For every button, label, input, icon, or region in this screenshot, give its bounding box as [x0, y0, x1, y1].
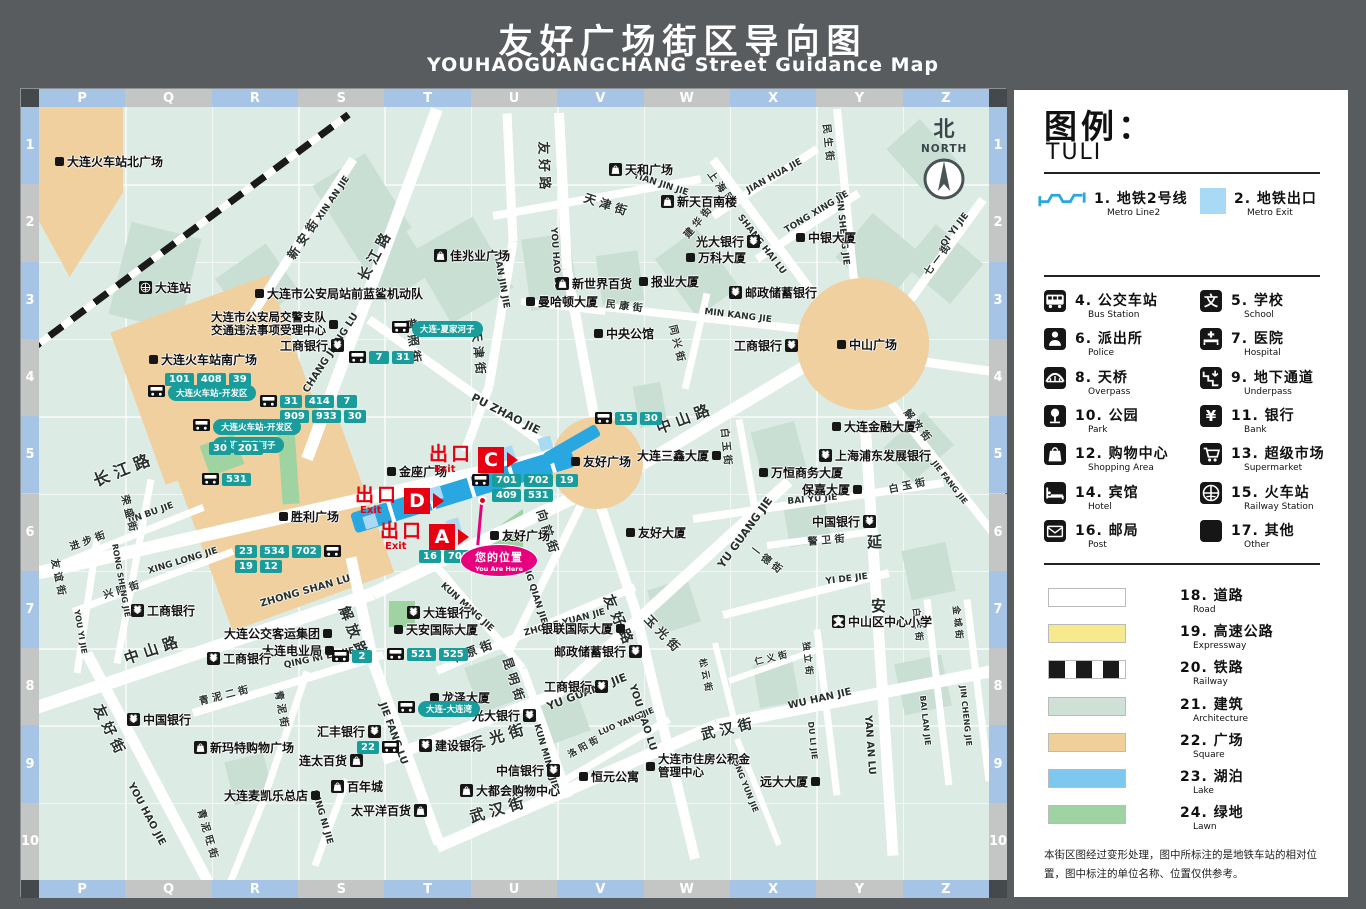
shopping-icon	[661, 195, 674, 208]
exit-arrow-icon	[433, 493, 444, 509]
bus-stop-icon	[472, 474, 489, 486]
shopping-icon	[556, 277, 569, 290]
building-marker-icon	[149, 355, 158, 364]
bus-stop-icon	[382, 741, 399, 753]
bus-route-row: 23534702	[235, 545, 321, 558]
poi-text: 友好广场	[502, 527, 550, 544]
poi-label: 天安国际大厦	[394, 621, 478, 638]
poi-text: 万科大厦	[698, 249, 746, 266]
grid-col-label: P	[39, 880, 125, 898]
bus-route-badge: 531	[524, 489, 553, 502]
street-label: 松 云 街	[696, 657, 716, 692]
building-marker-icon	[712, 451, 721, 460]
ruler-corner	[989, 89, 1007, 107]
bus-route-badge: 534	[260, 545, 289, 558]
poi-text: 远大大厦	[760, 773, 808, 790]
poi-label: ¥建设银行	[419, 737, 483, 754]
legend-item-text: 5. 学校School	[1231, 290, 1284, 320]
bus-stop-info: 531	[222, 473, 251, 486]
shopping-icon	[194, 741, 207, 754]
exit-arrow-icon	[507, 452, 518, 468]
bus-route-badge: 409	[492, 489, 521, 502]
poi-text: 汇丰银行	[317, 723, 365, 740]
poi-label: 万恒商务大厦	[759, 464, 843, 481]
page-subtitle: YOUHAOGUANGCHANG Street Guidance Map	[0, 54, 1366, 76]
bus-stop: 大连-夏家河子	[392, 321, 483, 337]
building-marker-icon	[594, 329, 603, 338]
legend-item: 15. 火车站Railway Station	[1200, 482, 1314, 512]
poi-text: 恒元公寓	[591, 768, 639, 785]
poi-label: 大连市公安局站前蓝鲨机动队	[255, 285, 423, 302]
bus-stop: 大连火车站-开发区	[148, 385, 256, 401]
street-label: 独 立 街	[800, 641, 816, 675]
poi-label: ¥上海浦东发展银行	[819, 447, 931, 464]
legend-item: 13. 超级市场Supermarket	[1200, 443, 1325, 473]
exit-arrow-icon	[458, 529, 469, 545]
grid-row-label: 7	[989, 571, 1007, 648]
poi-text: 佳兆业广场	[450, 247, 510, 264]
bus-route-badge: 702	[524, 474, 553, 487]
bus-route-badge: 702	[292, 545, 321, 558]
bus-stop-info: 大连-夏家河子	[412, 321, 483, 337]
legend-item: 1. 地铁2号线Metro Line2	[1038, 188, 1188, 218]
poi-text: 工商银行	[544, 678, 592, 695]
poi-label: 大连市住房公积金管理中心	[646, 753, 750, 779]
bus-stop: 22	[357, 741, 399, 754]
grid-col-label: Y	[816, 880, 902, 898]
you-are-here-zh: 您的位置	[475, 549, 523, 565]
grid-row-label: 5	[989, 416, 1007, 493]
legend-item-text: 10. 公园Park	[1075, 405, 1139, 435]
poi-text: 大连麦凯乐总店	[224, 787, 308, 804]
road	[712, 642, 738, 723]
poi-label: 邮政储蓄银行¥	[554, 643, 642, 660]
bus-route-badge: 12	[260, 560, 282, 573]
bus-stop: 731	[349, 351, 414, 364]
building-marker-icon	[837, 340, 846, 349]
building-shape	[901, 542, 955, 600]
grid-row-label: 4	[989, 339, 1007, 416]
poi-label: 大都会购物中心	[460, 782, 560, 799]
poi-label: ¥工商银行	[207, 650, 271, 667]
bus-route-name-badge: 大连火车站-开发区	[168, 385, 256, 401]
poi-label: 恒元公寓	[579, 768, 639, 785]
poi-text: 友好大厦	[638, 524, 686, 541]
map-panel: 长 江 路CHANG JIANG LU长 江 路中 山 路ZHONG SHAN …	[20, 88, 1006, 897]
poi-label: ¥大连银行	[407, 604, 471, 621]
poi-text: 中国银行	[812, 513, 860, 530]
building-marker-icon	[571, 457, 580, 466]
poi-label: 佳兆业广场	[434, 247, 510, 264]
poi-label: 中国银行¥	[812, 513, 876, 530]
grid-row-label: 5	[21, 416, 39, 493]
bus-route-badge: 30	[209, 442, 231, 455]
poi-label: 万科大厦	[686, 249, 746, 266]
bus-stop-info: 大连-大连湾	[418, 701, 480, 717]
poi-text: 中山广场	[849, 336, 897, 353]
overpass-icon	[1044, 367, 1066, 389]
bus-route-badge: 521	[407, 648, 436, 661]
exit-text: 出口Exit	[380, 522, 424, 552]
poi-label: ¥邮政储蓄银行	[729, 284, 817, 301]
bus-stop-icon	[387, 648, 404, 660]
grid-col-label: R	[212, 880, 298, 898]
building-marker-icon	[490, 531, 499, 540]
poi-label: 中央公馆	[594, 325, 654, 342]
bus-stop-info: 70170219409531	[492, 474, 578, 502]
grid-row-label: 9	[21, 725, 39, 802]
building-marker-icon	[646, 762, 655, 771]
bus-route-row: 314147	[280, 395, 366, 408]
legend-item-text: 7. 医院Hospital	[1231, 328, 1284, 358]
building-marker-icon	[55, 157, 64, 166]
building-marker-icon	[394, 625, 403, 634]
bus-route-badge: 19	[235, 560, 257, 573]
metro-exit-letter: D	[404, 488, 430, 514]
ruler-corner	[989, 880, 1007, 898]
poi-label: 大连火车站北广场	[55, 153, 163, 170]
bus-route-badge: 531	[222, 473, 251, 486]
grid-row-label: 8	[21, 648, 39, 725]
legend-swatch	[1048, 588, 1126, 607]
bus-stop: 大连-大连湾	[398, 701, 480, 717]
shopping-icon	[1044, 443, 1066, 465]
grid-col-label: S	[298, 880, 384, 898]
you-are-here-dot	[478, 496, 487, 505]
exit-zh: 出口	[380, 522, 424, 541]
legend-item-text: 8. 天桥Overpass	[1075, 367, 1130, 397]
building-marker-icon	[686, 253, 695, 262]
poi-text: 保嘉大厦	[802, 481, 850, 498]
poi-text: 天和广场	[625, 161, 673, 178]
grid-col-label: T	[384, 89, 470, 107]
legend-item-text: 6. 派出所Police	[1075, 328, 1143, 358]
bank-icon: ¥	[729, 286, 742, 299]
school-icon: 文	[1200, 290, 1222, 312]
poi-label: 光大银行¥	[696, 233, 760, 250]
legend-swatch	[1048, 733, 1126, 752]
poi-text: 中国银行	[143, 711, 191, 728]
exit-zh: 出口	[429, 445, 473, 464]
poi-text: 天安国际大厦	[406, 621, 478, 638]
poi-text: 大连三鑫大厦	[637, 447, 709, 464]
grid-row-label: 4	[21, 339, 39, 416]
legend-item-text: 15. 火车站Railway Station	[1231, 482, 1314, 512]
building-marker-icon	[329, 320, 338, 329]
bus-stop-icon	[349, 351, 366, 363]
legend-item-text: 1. 地铁2号线Metro Line2	[1094, 188, 1188, 218]
bus-route-badge: 701	[492, 474, 521, 487]
poi-text: 工商银行	[223, 650, 271, 667]
legend-item: 9. 地下通道Underpass	[1200, 367, 1314, 397]
bus-route-row: 521525	[407, 648, 468, 661]
poi-text: 大连市公安局交警支队交通违法事项受理中心	[211, 311, 326, 337]
grid-row-label: 6	[989, 494, 1007, 571]
metro-exit-letter: A	[429, 524, 455, 550]
legend-item-text: 2. 地铁出口Metro Exit	[1234, 188, 1317, 218]
metro-exit-label: 出口ExitD	[355, 486, 444, 516]
shopping-icon	[350, 754, 363, 767]
bank-icon: ¥	[747, 235, 760, 248]
exit-en: Exit	[380, 541, 424, 552]
poi-label: 远大大厦	[760, 773, 820, 790]
poi-text: 胜利广场	[291, 508, 339, 525]
bus-route-row: 731	[369, 351, 414, 364]
grid-col-label: V	[557, 880, 643, 898]
poi-text: 新世界百货	[572, 275, 632, 292]
legend-item: 16. 邮局Post	[1044, 520, 1139, 550]
bus-route-name-badge: 大连-大连湾	[418, 701, 480, 717]
bus-stop: 2	[332, 650, 372, 663]
divider	[1044, 172, 1320, 174]
bus-route-badge: 31	[280, 395, 302, 408]
legend-swatch-text: 20. 铁路Railway	[1180, 657, 1244, 687]
poi-label: 大连火车站南广场	[149, 351, 257, 368]
poi-text: 曼哈顿大厦	[538, 293, 598, 310]
legend-item-text: 12. 购物中心Shopping Area	[1075, 443, 1169, 473]
grid-col-label: U	[471, 89, 557, 107]
street-label: 白 玉 街	[887, 473, 926, 495]
poi-text: 百年城	[347, 778, 383, 795]
legend-swatch	[1048, 697, 1126, 716]
poi-label: ¥工商银行	[131, 602, 195, 619]
building-marker-icon	[626, 528, 635, 537]
grid-col-label: S	[298, 89, 384, 107]
park-icon	[1044, 405, 1066, 427]
shopping-icon	[414, 804, 427, 817]
grid-col-label: Q	[125, 89, 211, 107]
divider	[1044, 275, 1320, 277]
grid-col-label: V	[557, 89, 643, 107]
grid-col-label: X	[730, 89, 816, 107]
legend-item: 17. 其他Other	[1200, 520, 1295, 550]
exit-en: Exit	[355, 505, 399, 516]
bus-stop: 30201	[209, 442, 263, 455]
poi-label: 工商银行¥	[544, 678, 608, 695]
bus-route-row: 531	[222, 473, 251, 486]
poi-label: 天和广场	[609, 161, 673, 178]
poi-label: 大连三鑫大厦	[637, 447, 721, 464]
street-label: 新 安 街	[283, 216, 322, 262]
legend-item-text: 13. 超级市场Supermarket	[1231, 443, 1325, 473]
legend-item: 2. 地铁出口Metro Exit	[1200, 188, 1317, 218]
poi-text: 中央公馆	[606, 325, 654, 342]
compass-icon	[922, 155, 966, 201]
poi-text: 大都会购物中心	[476, 782, 560, 799]
poi-text: 大连市住房公积金管理中心	[658, 753, 750, 779]
shopping-icon	[331, 780, 344, 793]
poi-label: 太平洋百货	[351, 802, 427, 819]
poi-label: 中信银行¥	[496, 762, 560, 779]
ruler-corner	[21, 880, 39, 898]
road	[920, 357, 989, 378]
bank-icon: ¥	[331, 339, 344, 352]
bus-stop-icon	[398, 701, 415, 713]
grid-row-label: 7	[21, 571, 39, 648]
bank-icon: ¥	[419, 739, 432, 752]
ruler-corner	[21, 89, 39, 107]
metro-exit-icon	[1200, 188, 1226, 214]
road	[226, 800, 266, 880]
legend-item-text: 17. 其他Other	[1231, 520, 1295, 550]
grid-row-label: 8	[989, 648, 1007, 725]
bus-stop-icon	[193, 419, 210, 431]
grid-col-label: P	[39, 89, 125, 107]
building-marker-icon	[853, 485, 862, 494]
poi-label: 友好大厦	[626, 524, 686, 541]
bus-route-badge: 31	[392, 351, 414, 364]
grid-col-label: Z	[903, 89, 989, 107]
poi-label: 报业大厦	[639, 273, 699, 290]
building-marker-icon	[279, 512, 288, 521]
street-label: 同 兴 街	[666, 323, 689, 362]
legend-swatch-text: 19. 高速公路Expressway	[1180, 621, 1274, 651]
poi-text: 银联国际大厦	[541, 620, 613, 637]
metro-exit-label: 出口ExitA	[380, 522, 469, 552]
poi-text: 上海浦东发展银行	[835, 447, 931, 464]
bus-route-badge: 7	[369, 351, 389, 364]
poi-text: 大连火车站北广场	[67, 153, 163, 170]
legend-title-en: TULI	[1046, 140, 1102, 165]
building-marker-icon	[255, 289, 264, 298]
legend-item: ¥11. 银行Bank	[1200, 405, 1295, 435]
bus-stop-info: 22	[357, 741, 379, 754]
metro-line-icon	[1038, 188, 1086, 208]
legend-swatch-text: 18. 道路Road	[1180, 585, 1244, 615]
building-marker-icon	[616, 624, 625, 633]
bus-route-badge: 414	[305, 395, 334, 408]
poi-label: 曼哈顿大厦	[526, 293, 598, 310]
poi-label: 中山广场	[837, 336, 897, 353]
legend-item-text: 4. 公交车站Bus Station	[1075, 290, 1158, 320]
poi-label: 文中山区中心小学	[832, 613, 932, 630]
legend-item-text: 9. 地下通道Underpass	[1231, 367, 1314, 397]
legend-item-text: 16. 邮局Post	[1075, 520, 1139, 550]
grid-row-label: 1	[989, 107, 1007, 184]
grid-col-label: X	[730, 880, 816, 898]
square-area	[39, 107, 123, 277]
bus-route-badge: 19	[556, 474, 578, 487]
poi-label: 工商银行¥	[734, 337, 798, 354]
poi-text: 中山区中心小学	[848, 613, 932, 630]
street-label: JIAN HUA JIE	[745, 157, 804, 196]
poi-text: 大连公交客运集团	[224, 625, 320, 642]
grid-col-label: U	[471, 880, 557, 898]
bus-route-badge: 7	[337, 395, 357, 408]
you-are-here-en: You Are Here	[475, 565, 523, 573]
road	[82, 650, 214, 880]
grid-col-label: R	[212, 89, 298, 107]
poi-label: 大连市公安局交警支队交通违法事项受理中心	[211, 311, 338, 337]
bank-icon: ¥	[207, 652, 220, 665]
bus-stop-icon	[392, 321, 409, 333]
north-en: NORTH	[921, 143, 967, 155]
legend-swatch	[1048, 805, 1126, 824]
legend-swatch-text: 24. 绿地Lawn	[1180, 802, 1244, 832]
street-label: 青 泥 街	[272, 689, 293, 728]
grid-col-label: Z	[903, 880, 989, 898]
bus-route-row: 2	[352, 650, 372, 663]
bus-route-badge: 525	[439, 648, 468, 661]
bank-icon: ¥	[863, 515, 876, 528]
bus-route-badge: 22	[357, 741, 379, 754]
bank-icon: ¥	[127, 713, 140, 726]
exit-text: 出口Exit	[429, 445, 473, 475]
grid-col-label: Q	[125, 880, 211, 898]
bus-stop: 531	[202, 473, 251, 486]
hospital-icon	[1200, 328, 1222, 350]
bus-route-row: 22	[357, 741, 379, 754]
street-label: YAN AN LU	[862, 715, 877, 775]
bus-route-badge: 15	[615, 412, 637, 425]
street-label: 友 好 路	[535, 141, 556, 190]
legend-item: 14. 宾馆Hotel	[1044, 482, 1139, 512]
legend-item: 7. 医院Hospital	[1200, 328, 1284, 358]
grid-col-label: Y	[816, 89, 902, 107]
map-world: 长 江 路CHANG JIANG LU长 江 路中 山 路ZHONG SHAN …	[39, 107, 989, 880]
poi-label: 友好广场	[490, 527, 550, 544]
building-marker-icon	[579, 772, 588, 781]
grid-row-label: 10	[21, 803, 39, 880]
legend-item: 4. 公交车站Bus Station	[1044, 290, 1158, 320]
other-icon	[1200, 520, 1222, 542]
legend-swatch-text: 22. 广场Square	[1180, 730, 1244, 760]
poi-label: 百年城	[331, 778, 383, 795]
grid-row-label: 10	[989, 803, 1007, 880]
exit-text: 出口Exit	[355, 486, 399, 516]
bus-stop: 1530	[595, 412, 662, 425]
poi-label: 银联国际大厦	[541, 620, 625, 637]
bus-stop: 521525	[387, 648, 468, 661]
grid-col-label: W	[644, 89, 730, 107]
police-icon	[1044, 328, 1066, 350]
bus-stop-icon	[324, 545, 341, 557]
bus-stop-info: 大连火车站-开发区	[168, 385, 256, 401]
poi-text: 建设银行	[435, 737, 483, 754]
metro-exit-letter: C	[478, 447, 504, 473]
grid-row-label: 2	[989, 184, 1007, 261]
bus-stop-icon	[332, 650, 349, 662]
poi-text: 中银大厦	[808, 229, 856, 246]
bank-icon: ¥	[523, 709, 536, 722]
poi-text: 邮政储蓄银行	[554, 643, 626, 660]
street-label: 延	[867, 531, 882, 552]
bus-icon	[1044, 290, 1066, 312]
poi-label: 友好广场	[571, 453, 631, 470]
bank-icon: ¥	[407, 606, 420, 619]
poi-label: 胜利广场	[279, 508, 339, 525]
north-zh: 北	[921, 113, 967, 143]
legend-item: 文5. 学校School	[1200, 290, 1284, 320]
hotel-icon	[1044, 482, 1066, 504]
shopping-icon	[460, 784, 473, 797]
grid-col-label: W	[644, 880, 730, 898]
poi-text: 报业大厦	[651, 273, 699, 290]
legend-item: 8. 天桥Overpass	[1044, 367, 1130, 397]
grid-row-label: 3	[21, 262, 39, 339]
poi-label: 保嘉大厦	[802, 481, 862, 498]
bus-route-badge: 2	[352, 650, 372, 663]
grid-row-label: 9	[989, 725, 1007, 802]
road	[503, 113, 518, 241]
bus-route-badge: 201	[234, 442, 263, 455]
grid-col-label: T	[384, 880, 470, 898]
poi-text: 连太百货	[299, 752, 347, 769]
bank-icon: ¥	[368, 725, 381, 738]
legend-item-text: 14. 宾馆Hotel	[1075, 482, 1139, 512]
poi-text: 大连站	[155, 279, 191, 296]
grid-row-label: 1	[21, 107, 39, 184]
